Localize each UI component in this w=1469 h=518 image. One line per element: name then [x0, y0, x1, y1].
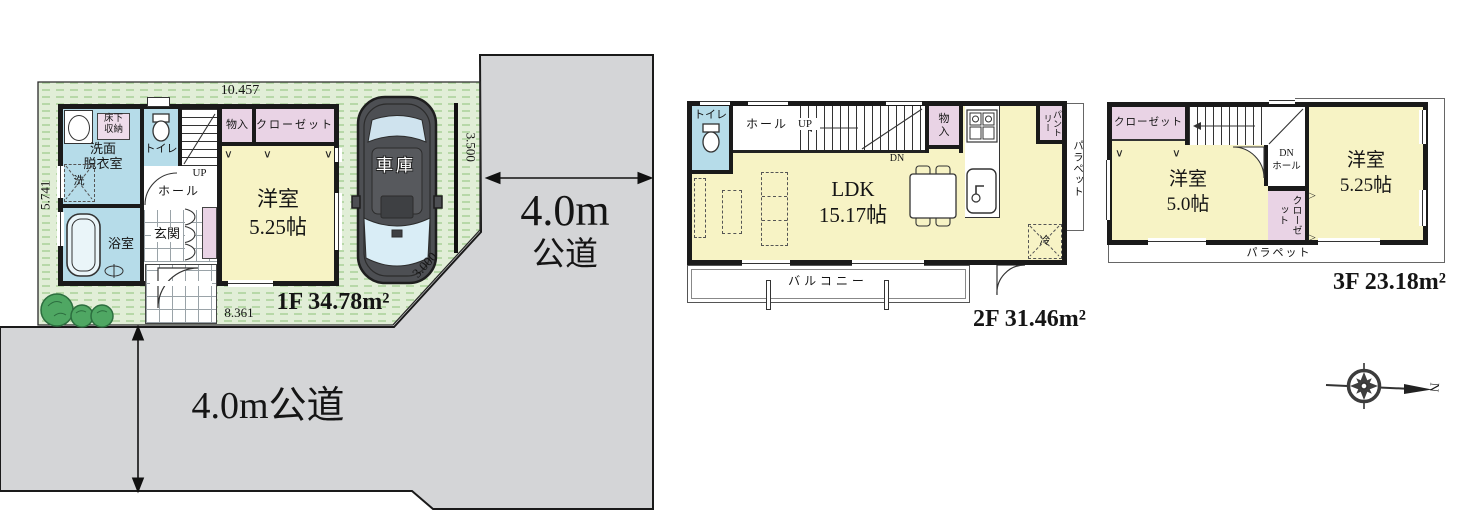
bottom-road-label: 4.0m公道 — [148, 385, 388, 428]
compass-icon — [1326, 363, 1432, 409]
toilet-icon — [149, 113, 173, 143]
f2-storage: 物 入 — [929, 106, 959, 145]
f1-entrance-label: 玄関 — [151, 227, 183, 242]
f1-sink — [64, 110, 93, 144]
f2-parapet-label: パラペット — [1068, 133, 1083, 205]
f3-door-mark: ▷ — [1308, 192, 1316, 201]
f2-fridge: 冷 — [1028, 224, 1062, 259]
f2-tv-board — [694, 178, 706, 238]
f1-laundry-box: 洗 — [64, 164, 95, 202]
f3-closet2: クローゼット — [1268, 191, 1305, 240]
f1-laundry-label: 洗 — [65, 175, 93, 187]
f2-storage-label: 物 入 — [939, 113, 950, 138]
f3-closet2-label: クローゼット — [1271, 194, 1302, 236]
f3-area-label: 3F 23.18m² — [1322, 269, 1457, 296]
f2-area-label: 2F 31.46m² — [962, 306, 1097, 333]
f1-underfloor-label: 床下 収納 — [97, 113, 130, 140]
stove-icon — [966, 109, 998, 143]
f3-room2: 洋室 5.25帖 — [1309, 107, 1423, 240]
f2-sofa — [761, 172, 788, 246]
f1-area-label: 1F 34.78m² — [268, 289, 398, 316]
f3-building: クローゼット DN ホール クローゼット 洋室 5.0帖 — [1107, 102, 1428, 245]
f1-toilet-label: トイレ — [145, 143, 178, 155]
f2-pantry-label: パントリー — [1041, 107, 1061, 139]
f3-door-mark: ▷ — [1308, 234, 1316, 243]
f1-porch — [145, 264, 217, 324]
f3-parapet-label: パラペット — [1238, 247, 1320, 259]
f2-balcony: バルコニー — [687, 265, 970, 303]
sink-icon — [966, 168, 998, 214]
f1-stairs — [182, 109, 217, 166]
f2-ldk-label: LDK 15.17帖 — [788, 176, 918, 229]
f1-window — [57, 212, 64, 246]
f2-kitchen-counter — [965, 106, 1000, 218]
dim-top-label: 10.457 — [208, 83, 272, 99]
f2-dining-set — [902, 164, 964, 228]
f3-hall: DN ホール — [1268, 145, 1305, 186]
f1-drain-icon — [101, 264, 127, 278]
f3-window — [1269, 97, 1295, 104]
f1-building: 床下 収納 洗面 脱衣室 洗 浴室 トイレ UP — [58, 104, 339, 286]
f1-storage: 物入 — [222, 109, 252, 142]
f1-porch-door-arc — [156, 266, 206, 312]
f2-pantry: パントリー — [1040, 106, 1062, 140]
f1-closet: クローゼット — [256, 109, 334, 142]
f3-door-arc — [1230, 145, 1266, 180]
dim-bottom-label: 8.361 — [213, 306, 265, 321]
f1-toilet: トイレ — [144, 109, 178, 166]
floorplan-sheet: N 4.0m 公道 4.0m公道 10.457 5.741 8.361 3.50… — [0, 0, 1469, 518]
f3-window — [1103, 160, 1110, 220]
right-road-size-label: 4.0m — [498, 186, 632, 235]
f1-bedroom-label: 洋室 5.25帖 — [249, 186, 307, 241]
f2-hall-label: ホール — [736, 118, 798, 131]
f1-shoe-cabinet — [202, 207, 217, 259]
dim-right-label: 3.500 — [463, 122, 478, 172]
f3-room2-label: 洋室 5.25帖 — [1340, 149, 1392, 198]
f1-up-label: UP — [182, 167, 217, 179]
f3-window — [1148, 238, 1206, 245]
f1-bedroom: 洋室 5.25帖 — [222, 146, 334, 281]
f2-balcony-label: バルコニー — [778, 275, 878, 288]
f1-window — [228, 280, 273, 287]
f2-dn-label: DN — [884, 153, 910, 164]
f1-closet-label: クローゼット — [256, 119, 334, 131]
f2-up-label: UP — [790, 118, 820, 130]
f1-bath-label: 浴室 — [101, 237, 141, 252]
f3-room1-label: 洋室 5.0帖 — [1167, 168, 1210, 217]
f3-closet-label: クローゼット — [1114, 117, 1183, 129]
f2-toilet: トイレ — [692, 106, 729, 170]
f1-storage-label: 物入 — [226, 119, 248, 131]
f2-table — [722, 190, 742, 234]
f2-building: トイレ ホール UP DN 物 入 — [687, 101, 1067, 265]
f1-garage-label: 車庫 — [366, 156, 426, 175]
f3-window — [1419, 190, 1426, 226]
compass-north-label: N — [1426, 377, 1443, 398]
f2-window — [700, 98, 730, 105]
f3-stairs — [1189, 107, 1305, 145]
f3-window — [1419, 110, 1426, 144]
f3-dn-label: DN — [1268, 148, 1305, 159]
f1-hall-door-arc — [144, 172, 178, 206]
f1-bathtub-icon — [65, 212, 103, 278]
f1-window — [57, 166, 64, 198]
tree-icons — [41, 294, 113, 327]
toilet-icon — [699, 123, 723, 155]
f2-window — [886, 98, 922, 105]
f2-balcony-divider — [766, 280, 771, 310]
f1-toilet-window — [147, 97, 170, 107]
right-road-type-label: 公道 — [498, 237, 632, 274]
f2-toilet-label: トイレ — [694, 109, 727, 121]
f2-balcony-divider — [884, 280, 889, 310]
f3-closet: クローゼット — [1112, 107, 1185, 141]
f1-window — [335, 193, 342, 250]
f2-window — [748, 98, 788, 105]
dim-left-label: 5.741 — [39, 170, 54, 220]
f3-hall-label: ホール — [1268, 162, 1305, 173]
f1-front-door-icon — [183, 208, 203, 262]
f3-window — [1318, 238, 1380, 245]
f2-window — [852, 260, 924, 267]
f2-door-arc — [995, 265, 1029, 299]
f2-window — [742, 260, 790, 267]
f1-window — [335, 148, 342, 162]
